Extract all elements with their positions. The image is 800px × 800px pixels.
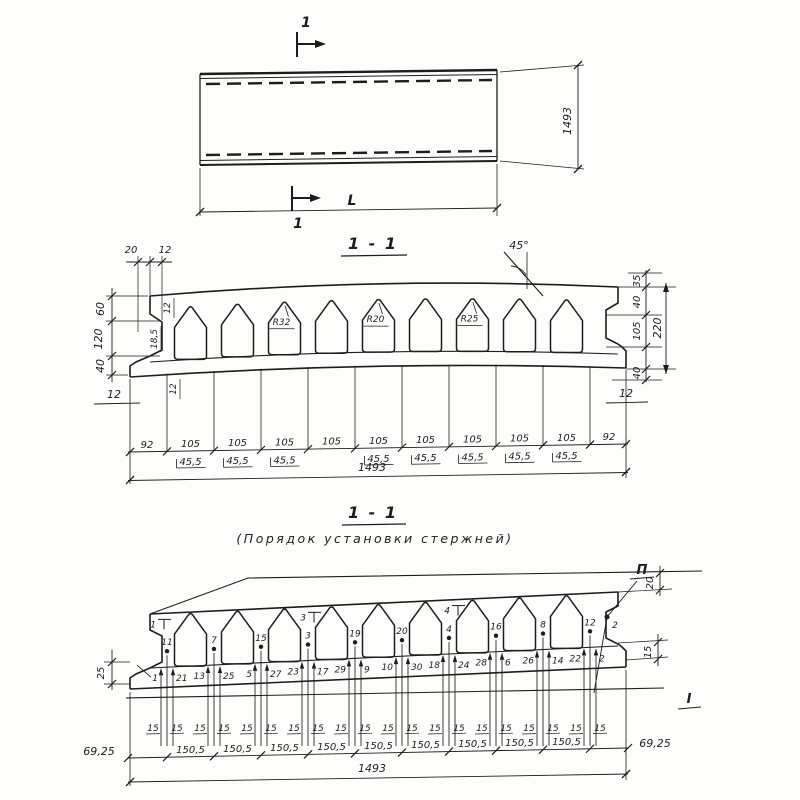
void-pentagon — [222, 304, 254, 357]
void-pentagon — [410, 299, 442, 352]
top-mark-label: 1 — [150, 620, 156, 630]
dim-12-inner-top: 12 — [163, 302, 173, 314]
plan-length-dim: L — [196, 164, 501, 216]
rod-number: 23 — [288, 668, 300, 678]
dim-15: 15 — [288, 724, 300, 734]
s1-left-below-dim: 12 — [94, 388, 140, 404]
rod-number: 12 — [584, 618, 596, 628]
cut-label-bottom: 1 — [293, 216, 303, 232]
rod-arrow — [488, 653, 492, 660]
rod-number: 27 — [270, 670, 282, 680]
dim-45-5: 45,5 — [508, 452, 530, 463]
dim-105-right: 105 — [632, 321, 643, 340]
section-1-1-order: 1 - 1 (Порядок установки стержней) П 2 I — [83, 503, 702, 786]
dim-45-5: 45,5 — [555, 451, 577, 462]
dim-105: 105 — [463, 434, 482, 445]
rod-number: 8 — [540, 621, 546, 631]
dim-40-left: 40 — [94, 359, 107, 373]
rod-number: 29 — [335, 665, 347, 675]
rod-number: 2 — [599, 654, 605, 664]
dim-150-5: 150,5 — [458, 739, 487, 750]
rod-number: 21 — [176, 674, 187, 684]
rod-number: 28 — [476, 659, 488, 669]
rod-arrow — [218, 666, 222, 673]
rod-number: 15 — [255, 634, 267, 644]
dim-105: 105 — [275, 437, 294, 448]
rod-arrow — [394, 657, 398, 664]
rod-number: 16 — [490, 623, 502, 633]
dim-45-5: 45,5 — [461, 452, 483, 463]
dim-15: 15 — [218, 724, 230, 734]
void-pentagon — [222, 611, 254, 664]
dim-15: 15 — [194, 724, 206, 734]
underline — [224, 467, 253, 468]
dim-105: 105 — [416, 435, 435, 446]
dim-15: 15 — [547, 724, 559, 734]
dim-15-right: 15 — [643, 646, 654, 659]
underline — [553, 461, 582, 462]
radius-label: R20 — [367, 315, 385, 325]
dim-15: 15 — [594, 724, 606, 734]
row-1-marker: I — [678, 692, 701, 709]
dim-6925-right: 69,25 — [639, 737, 671, 750]
rod-dot — [353, 640, 357, 644]
dim-150-5: 150,5 — [411, 740, 440, 751]
section-cut-mark-top: 1 — [297, 15, 326, 57]
section2-subtitle: (Порядок установки стержней) — [236, 531, 513, 546]
void-pentagon — [363, 605, 395, 658]
rod-number: 6 — [505, 659, 511, 669]
plan-width-dim: 1493 — [500, 61, 584, 173]
rod-1-leader — [137, 665, 151, 677]
dim-45-5: 45,5 — [179, 457, 201, 468]
cut-label-top: 1 — [301, 15, 311, 31]
section-cut-mark-bottom: 1 — [292, 186, 321, 232]
section2-title: 1 - 1 — [348, 503, 398, 522]
dim-35: 35 — [632, 275, 643, 288]
rod-number: 20 — [396, 627, 408, 637]
dim-105: 105 — [369, 436, 388, 447]
radius-label: R25 — [461, 314, 479, 324]
dim-15: 15 — [476, 724, 488, 734]
void-pentagon — [175, 307, 207, 360]
dim-15: 15 — [171, 724, 183, 734]
rod-arrow — [406, 657, 410, 664]
void-pentagon — [457, 600, 489, 653]
angle-45-dim: 45° — [504, 239, 543, 296]
rod-dot — [212, 647, 216, 651]
dim-40-right-bottom: 40 — [632, 367, 643, 380]
rod-dot — [494, 634, 498, 638]
dim-105: 105 — [557, 433, 576, 444]
rod-arrow — [582, 648, 586, 655]
s1-right-below-dim: 12 — [606, 387, 648, 403]
underline — [271, 466, 300, 467]
dim-92-right: 92 — [603, 432, 616, 443]
dim-1493-s2: 1493 — [358, 762, 386, 775]
dim-15: 15 — [453, 724, 465, 734]
rod-number: 18 — [429, 661, 441, 671]
rod-number: 4 — [446, 625, 452, 635]
leader — [379, 303, 383, 314]
rod-number: 26 — [523, 657, 535, 667]
dim-12: 12 — [159, 245, 172, 256]
dim-15: 15 — [382, 724, 394, 734]
rod-number: 14 — [552, 657, 564, 667]
dim-105: 105 — [510, 434, 529, 445]
dim-15: 15 — [265, 724, 277, 734]
dim-15: 15 — [147, 724, 159, 734]
rod-number: 5 — [246, 670, 252, 680]
rod-arrow — [347, 659, 351, 666]
dim-45-5: 45,5 — [367, 454, 389, 465]
void-pentagon — [551, 300, 583, 353]
rod-number: 3 — [305, 632, 311, 642]
underline — [177, 468, 206, 469]
dim-18-5-inner: 18,5 — [150, 329, 160, 349]
dim-15: 15 — [429, 724, 441, 734]
dim-220: 220 — [651, 318, 664, 339]
rod-dot — [400, 638, 404, 642]
drawing-canvas: 1 1 L 1493 1 - 1 — [0, 0, 800, 800]
rod-arrow — [547, 651, 551, 658]
plan-view: 1 1 L 1493 — [196, 15, 584, 232]
rod-number: 25 — [223, 672, 235, 682]
top-mark-label: 3 — [300, 613, 306, 623]
void-pentagon — [504, 598, 536, 651]
void-pentagon — [269, 609, 301, 662]
dim-120: 120 — [92, 329, 105, 350]
void-pentagon — [316, 301, 348, 354]
rod-number: 13 — [194, 672, 206, 682]
radius-label: R32 — [273, 318, 291, 328]
dim-15: 15 — [241, 724, 253, 734]
dim-45-5: 45,5 — [273, 455, 295, 466]
void-pentagon — [410, 603, 442, 656]
rod-arrow — [453, 655, 457, 662]
void-pentagon — [551, 596, 583, 649]
dim-150-5: 150,5 — [223, 744, 252, 755]
rod-number: 10 — [382, 663, 394, 673]
dim-150-5: 150,5 — [270, 743, 299, 754]
void-pentagon — [316, 607, 348, 660]
dim-45-5: 45,5 — [414, 453, 436, 464]
section1-title: 1 - 1 — [348, 234, 398, 253]
row-bottom-label: I — [687, 692, 692, 707]
rod-arrow — [500, 653, 504, 660]
rod-arrow — [253, 664, 257, 671]
rod-number: 24 — [458, 661, 470, 671]
rod-number: 19 — [349, 629, 361, 639]
rod-number: 22 — [570, 654, 582, 664]
void-pentagon — [175, 614, 207, 667]
blueprint-page: 1 1 L 1493 1 - 1 — [0, 0, 800, 800]
dim-20-right: 20 — [645, 577, 656, 590]
top-mark-label: 4 — [444, 607, 450, 617]
section-1-1: 1 - 1 45° 20 12 60 120 — [92, 234, 676, 484]
s1-left-inner-dims: 12 18,5 12 — [150, 298, 180, 399]
rod-arrow — [535, 651, 539, 658]
plan-width-label: 1493 — [561, 107, 574, 135]
rod-number: 17 — [317, 668, 329, 678]
dim-92-left: 92 — [141, 440, 154, 451]
dim-105: 105 — [181, 439, 200, 450]
dim-15: 15 — [570, 724, 582, 734]
dim-40-right-top: 40 — [632, 296, 643, 309]
rod-dot — [588, 629, 592, 633]
dim-20: 20 — [125, 245, 138, 256]
dim-105: 105 — [322, 437, 341, 448]
dim-150-5: 150,5 — [364, 741, 393, 752]
dim-150-5: 150,5 — [505, 738, 534, 749]
dim-25-left: 25 — [96, 667, 107, 680]
rod-arrow — [171, 668, 175, 675]
plan-length-label: L — [348, 193, 357, 209]
rod-number: 9 — [364, 665, 370, 675]
void-pentagon — [504, 299, 536, 352]
rod-dot — [447, 636, 451, 640]
rod-number: 30 — [411, 663, 423, 673]
s1-topleft-dims: 20 12 — [125, 245, 172, 332]
rod-arrow — [206, 666, 210, 673]
dim-15: 15 — [359, 724, 371, 734]
dim-12-inner-bottom: 12 — [169, 383, 179, 395]
rod-dot — [541, 631, 545, 635]
s2-left-dim: 25 — [96, 650, 130, 690]
rod-number: 11 — [161, 638, 172, 648]
dim-6925-left: 69,25 — [83, 745, 115, 758]
underline — [365, 464, 394, 465]
dim-150-5: 150,5 — [176, 745, 205, 756]
rod-dot — [165, 649, 169, 653]
rod-dot — [259, 645, 263, 649]
row-top-label: П — [637, 563, 648, 578]
rod-arrow — [594, 648, 598, 655]
dim-15: 15 — [335, 724, 347, 734]
underline — [506, 462, 535, 463]
dim-15: 15 — [500, 724, 512, 734]
rod-2-top-label: 2 — [612, 621, 618, 631]
s1-generated: 10510510510510510510510510545,545,545,54… — [126, 299, 630, 468]
dim-15: 15 — [523, 724, 535, 734]
leader — [285, 306, 289, 317]
rod-number: 7 — [211, 636, 217, 646]
dim-60: 60 — [94, 302, 107, 316]
rod-arrow — [312, 662, 316, 669]
rod-arrow — [159, 668, 163, 675]
dim-12-belowleft: 12 — [107, 388, 121, 401]
dim-45-5: 45,5 — [226, 456, 248, 467]
rod-dot — [306, 642, 310, 646]
rod-arrow — [359, 659, 363, 666]
dim-150-5: 150,5 — [552, 737, 581, 748]
leader — [473, 302, 477, 313]
angle-label: 45° — [509, 239, 529, 252]
rod-arrow — [265, 664, 269, 671]
rod-arrow — [441, 655, 445, 662]
rod-arrow — [300, 662, 304, 669]
dim-150-5: 150,5 — [317, 742, 346, 753]
underline — [412, 464, 441, 465]
s2-generated: 150,5150,5150,5150,5150,5150,5150,5150,5… — [124, 596, 632, 762]
dim-15: 15 — [406, 724, 418, 734]
underline — [459, 463, 488, 464]
dim-105: 105 — [228, 438, 247, 449]
dim-15: 15 — [312, 724, 324, 734]
rod-number: 1 — [152, 674, 158, 684]
